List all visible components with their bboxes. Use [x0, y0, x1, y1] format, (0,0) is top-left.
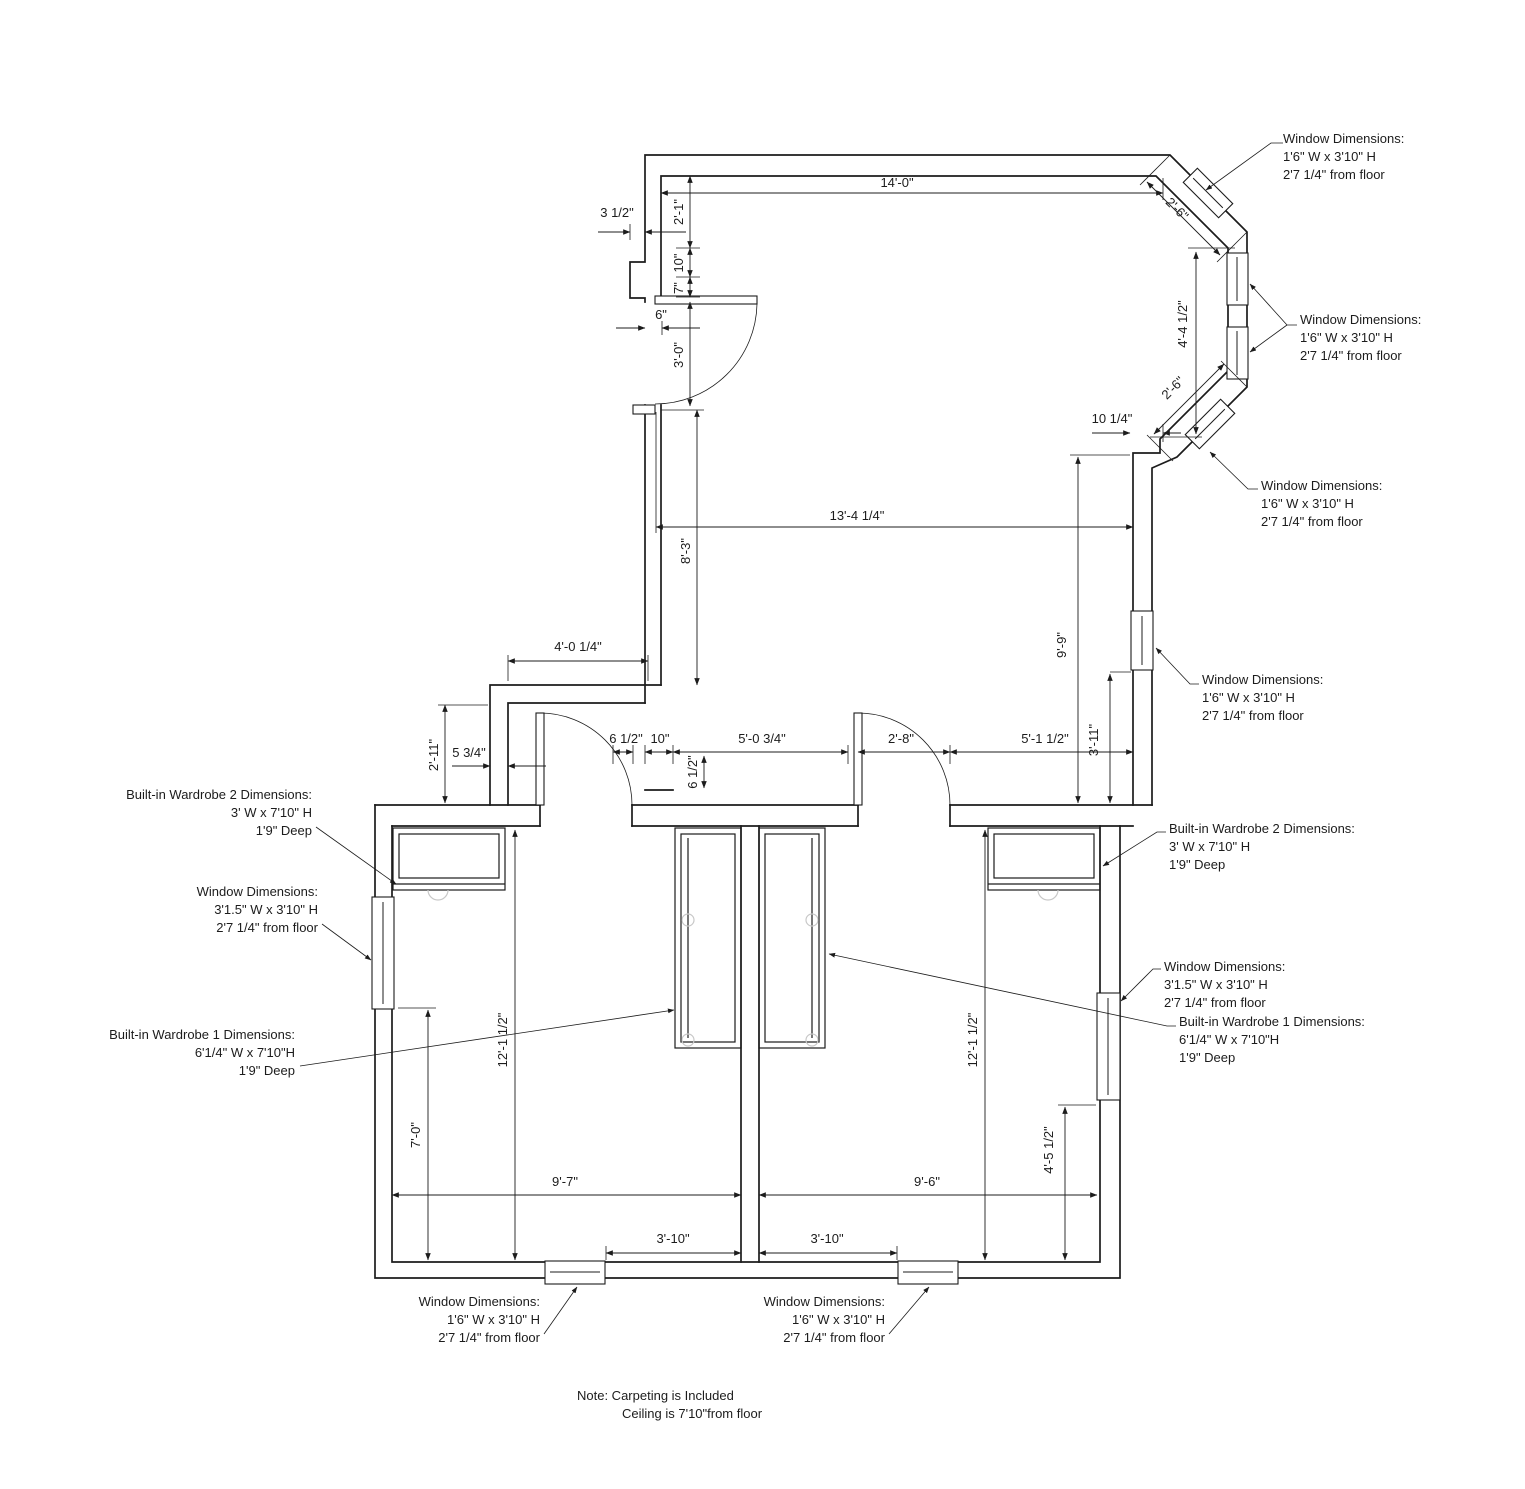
upper-room-outer-wall: [630, 155, 1247, 805]
annotation-line: 1'9" Deep: [239, 1063, 295, 1078]
right-bedroom-side-window: [1097, 993, 1120, 1100]
annotation-line: 1'6" W x 3'10" H: [1202, 690, 1295, 705]
dim-13-4: 13'-4 1/4": [830, 508, 885, 523]
dim-3-0: 3'-0": [671, 342, 686, 368]
annotation-line: 2'7 1/4" from floor: [438, 1330, 540, 1345]
dim-14-0: 14'-0": [880, 175, 914, 190]
note-line-2: Ceiling is 7'10"from floor: [622, 1406, 763, 1421]
wardrobe-1-left: [675, 828, 741, 1048]
leader-lines: [300, 143, 1297, 1334]
wardrobe-rod-symbols: [428, 890, 1058, 1046]
entry-door: [633, 296, 757, 414]
annotation-window-bottom-right: Window Dimensions: 1'6" W x 3'10" H 2'7 …: [764, 1294, 886, 1345]
annotation-line: Window Dimensions:: [197, 884, 318, 899]
annotation-line: 2'7 1/4" from floor: [1300, 348, 1402, 363]
bay-window-right-upper: [1227, 253, 1248, 305]
left-bedroom-bottom-window: [545, 1261, 605, 1284]
annotation-line: Window Dimensions:: [419, 1294, 540, 1309]
dim-4-0-quarter: 4'-0 1/4": [554, 639, 602, 654]
dimension-labels: 14'-0" 3 1/2" 2'-1" 10" 7" 6" 3'-0" 13'-…: [408, 175, 1192, 1246]
wardrobe-2-right: [988, 828, 1100, 890]
annotation-window-bay-right: Window Dimensions: 1'6" W x 3'10" H 2'7 …: [1300, 312, 1421, 363]
annotation-wardrobe1-right: Built-in Wardrobe 1 Dimensions: 6'1/4" W…: [1179, 1014, 1365, 1065]
annotation-line: Built-in Wardrobe 2 Dimensions:: [126, 787, 312, 802]
note-line-1: Note: Carpeting is Included: [577, 1388, 734, 1403]
wardrobe-1-right: [759, 828, 825, 1048]
dim-6: 6": [655, 307, 667, 322]
annotation-line: 1'9" Deep: [1179, 1050, 1235, 1065]
dim-9-6: 9'-6": [914, 1174, 940, 1189]
annotation-window-bay-top: Window Dimensions: 1'6" W x 3'10" H 2'7 …: [1283, 131, 1404, 182]
dim-3-10-right: 3'-10": [810, 1231, 844, 1246]
floor-plan-page: 14'-0" 3 1/2" 2'-1" 10" 7" 6" 3'-0" 13'-…: [0, 0, 1525, 1489]
annotation-line: 6'1/4" W x 7'10"H: [195, 1045, 295, 1060]
annotation-line: 1'6" W x 3'10" H: [447, 1312, 540, 1327]
dim-12-1-right: 12'-1 1/2": [965, 1012, 980, 1067]
dim-8-3: 8'-3": [678, 538, 693, 564]
annotation-line: Window Dimensions:: [1164, 959, 1285, 974]
annotation-line: 2'7 1/4" from floor: [1261, 514, 1363, 529]
bedroom-divider-wall: [741, 826, 759, 1262]
dim-7: 7": [671, 282, 686, 294]
dim-7-0: 7'-0": [408, 1122, 423, 1148]
dim-3-11: 3'-11": [1086, 724, 1101, 757]
annotation-line: Window Dimensions:: [764, 1294, 885, 1309]
windows: [372, 168, 1248, 1284]
annotation-line: 1'6" W x 3'10" H: [792, 1312, 885, 1327]
annotation-line: 1'6" W x 3'10" H: [1283, 149, 1376, 164]
walls: [375, 155, 1247, 1278]
bay-window-right-lower: [1227, 327, 1248, 379]
wardrobe-2-left: [393, 828, 505, 890]
annotation-line: 3'1.5" W x 3'10" H: [1164, 977, 1268, 992]
right-bedroom-bottom-window: [898, 1261, 958, 1284]
annotation-line: 2'7 1/4" from floor: [1283, 167, 1385, 182]
doors: [536, 296, 950, 805]
annotation-wardrobe2-right: Built-in Wardrobe 2 Dimensions: 3' W x 7…: [1169, 821, 1355, 872]
annotation-window-hall-right: Window Dimensions: 1'6" W x 3'10" H 2'7 …: [1202, 672, 1323, 723]
dim-10-top: 10": [671, 253, 686, 272]
dim-10-quarter: 10 1/4": [1092, 411, 1133, 426]
dim-5-34: 5 3/4": [452, 745, 486, 760]
dim-5-1-half: 5'-1 1/2": [1021, 731, 1069, 746]
annotation-line: 1'9" Deep: [1169, 857, 1225, 872]
dim-6-half-b: 6 1/2": [685, 755, 700, 789]
annotation-line: 1'6" W x 3'10" H: [1261, 496, 1354, 511]
entry-door-sill: [633, 405, 655, 414]
bedroom-outer-wall: [375, 805, 1120, 1278]
dim-5-0-34: 5'-0 3/4": [738, 731, 786, 746]
annotation-line: 1'6" W x 3'10" H: [1300, 330, 1393, 345]
dim-3-half: 3 1/2": [600, 205, 634, 220]
annotation-line: 3' W x 7'10" H: [1169, 839, 1250, 854]
dim-2-11: 2'-11": [426, 739, 441, 772]
annotation-line: 6'1/4" W x 7'10"H: [1179, 1032, 1279, 1047]
annotation-window-right-bedroom: Window Dimensions: 3'1.5" W x 3'10" H 2'…: [1164, 959, 1285, 1010]
dim-6-half-a: 6 1/2": [609, 731, 643, 746]
annotation-window-bottom-left: Window Dimensions: 1'6" W x 3'10" H 2'7 …: [419, 1294, 541, 1345]
annotation-line: Built-in Wardrobe 2 Dimensions:: [1169, 821, 1355, 836]
annotation-line: 2'7 1/4" from floor: [1164, 995, 1266, 1010]
annotation-line: 2'7 1/4" from floor: [1202, 708, 1304, 723]
bedroom-door-right: [854, 713, 950, 805]
dim-3-10-left: 3'-10": [656, 1231, 690, 1246]
dim-2-6-bottom: 2'-6": [1158, 373, 1187, 402]
annotation-line: Window Dimensions:: [1261, 478, 1382, 493]
annotation-wardrobe1-left: Built-in Wardrobe 1 Dimensions: 6'1/4" W…: [109, 1027, 295, 1078]
annotation-line: 2'7 1/4" from floor: [216, 920, 318, 935]
note-block: Note: Carpeting is Included Ceiling is 7…: [577, 1388, 763, 1421]
floor-plan-drawing: 14'-0" 3 1/2" 2'-1" 10" 7" 6" 3'-0" 13'-…: [0, 0, 1525, 1489]
dim-10-b: 10": [650, 731, 669, 746]
annotation-line: 3'1.5" W x 3'10" H: [214, 902, 318, 917]
door-jambs: [540, 805, 950, 826]
annotation-line: 3' W x 7'10" H: [231, 805, 312, 820]
dim-4-5-half: 4'-5 1/2": [1041, 1126, 1056, 1174]
dim-9-7: 9'-7": [552, 1174, 578, 1189]
annotation-line: 2'7 1/4" from floor: [783, 1330, 885, 1345]
annotation-line: Window Dimensions:: [1202, 672, 1323, 687]
bedroom-door-left: [536, 713, 632, 805]
hall-step-wall-inner: [508, 703, 645, 805]
annotation-line: Window Dimensions:: [1300, 312, 1421, 327]
dim-2-8: 2'-8": [888, 731, 914, 746]
left-bedroom-side-window: [372, 897, 394, 1009]
upper-room-inner-wall: [661, 176, 1228, 805]
annotation-window-bay-bottom: Window Dimensions: 1'6" W x 3'10" H 2'7 …: [1261, 478, 1382, 529]
annotation-line: Window Dimensions:: [1283, 131, 1404, 146]
annotation-wardrobe2-left: Built-in Wardrobe 2 Dimensions: 3' W x 7…: [126, 787, 312, 838]
hall-right-window: [1131, 611, 1153, 670]
annotation-window-left-bedroom: Window Dimensions: 3'1.5" W x 3'10" H 2'…: [197, 884, 319, 935]
dim-12-1-left: 12'-1 1/2": [495, 1012, 510, 1067]
annotation-line: Built-in Wardrobe 1 Dimensions:: [1179, 1014, 1365, 1029]
dim-9-9: 9'-9": [1054, 632, 1069, 658]
dim-2-1: 2'-1": [671, 199, 686, 225]
annotation-line: Built-in Wardrobe 1 Dimensions:: [109, 1027, 295, 1042]
dim-4-4-half: 4'-4 1/2": [1175, 300, 1190, 348]
dim-2-6-top: 2'-6": [1163, 194, 1192, 223]
annotation-line: 1'9" Deep: [256, 823, 312, 838]
